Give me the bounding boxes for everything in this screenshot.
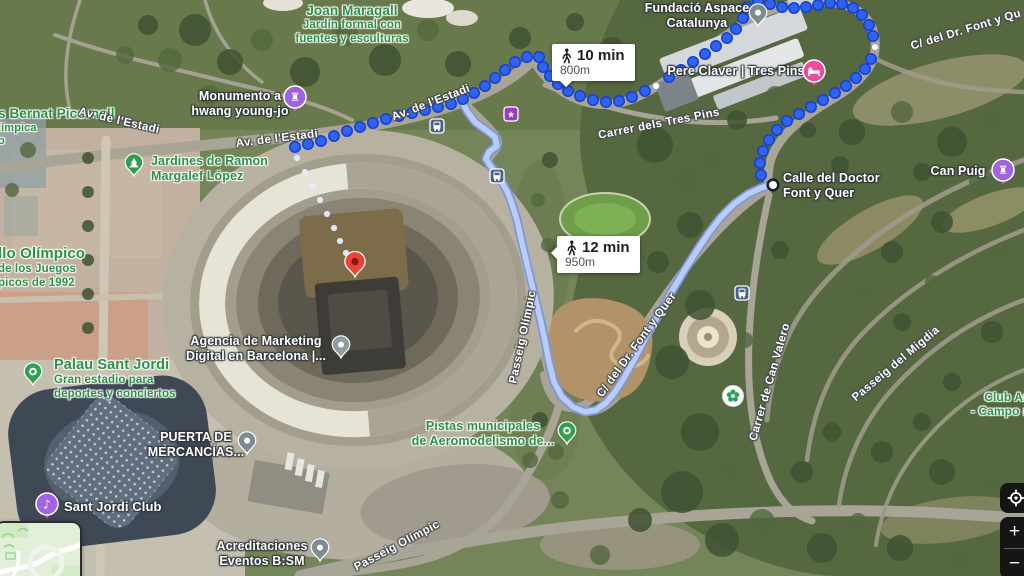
pistas-aeromodelismo-pin[interactable] — [558, 422, 576, 444]
acreditaciones-pin[interactable] — [311, 539, 329, 561]
route-distance: 950m — [565, 255, 630, 269]
poi-icon-layer: ♜♪♜★ — [0, 0, 1024, 576]
icon-glyph: ♜ — [290, 90, 300, 104]
locate-target-icon — [1007, 489, 1024, 507]
agencia-marketing-pin[interactable] — [332, 336, 350, 358]
minimap-imagery-toggle[interactable] — [0, 521, 82, 576]
fundacio-aspace-pin[interactable] — [749, 4, 767, 26]
puerta-mercancias-pin[interactable] — [238, 432, 256, 454]
zoom-out-button[interactable]: − — [1000, 549, 1024, 576]
route-distance: 800m — [560, 63, 625, 77]
minimap-preview — [0, 523, 80, 576]
bus-stop-icon[interactable] — [430, 119, 444, 133]
park-flower-icon[interactable] — [723, 386, 744, 407]
route-duration: 12 min — [582, 239, 630, 256]
jardines-ramon-pin[interactable] — [125, 154, 143, 176]
route-duration: 10 min — [577, 47, 625, 64]
bus-stop-icon[interactable] — [490, 169, 504, 183]
icon-glyph: ★ — [507, 111, 515, 121]
palau-sant-jordi-pin[interactable] — [24, 363, 42, 385]
attraction-icon[interactable]: ★ — [504, 107, 518, 121]
destination-pin[interactable] — [345, 251, 365, 277]
walk-time-badge-12min[interactable]: 12 min 950m — [557, 236, 640, 273]
icon-glyph: ♪ — [43, 498, 51, 512]
pere-claver-lodging-icon[interactable] — [803, 60, 825, 86]
monumento-hwang-icon[interactable]: ♜ — [284, 86, 306, 112]
walking-person-icon — [560, 48, 573, 64]
icon-glyph: ♜ — [998, 163, 1008, 177]
walk-time-badge-10min[interactable]: 10 min 800m — [552, 44, 635, 81]
bus-stop-icon[interactable] — [735, 286, 749, 300]
can-puig-icon[interactable]: ♜ — [992, 159, 1014, 185]
walking-person-icon — [565, 240, 578, 256]
zoom-control: + − — [1000, 517, 1024, 576]
zoom-in-button[interactable]: + — [1000, 517, 1024, 548]
map-viewport[interactable]: Joan MaragallJardín formal confuentes y … — [0, 0, 1024, 576]
my-location-button[interactable] — [1000, 483, 1024, 513]
sant-jordi-club-music-icon[interactable]: ♪ — [36, 493, 58, 519]
